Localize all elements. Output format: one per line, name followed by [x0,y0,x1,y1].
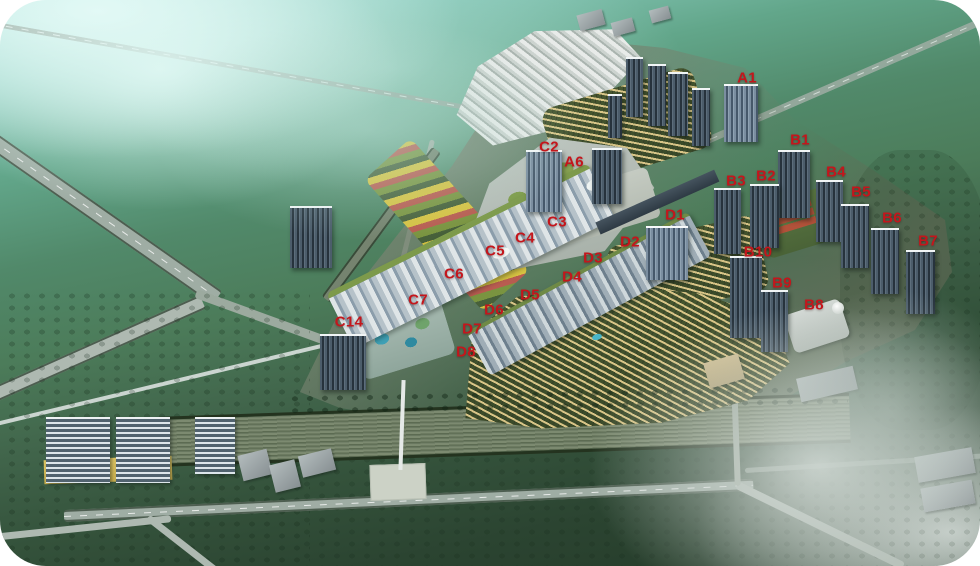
building-label-c5: C5 [485,243,505,260]
building-label-c7: C7 [408,292,428,309]
building-label-a1: A1 [737,70,757,87]
building-label-c3: C3 [547,214,567,231]
building-label-b8: B8 [804,297,824,314]
aerial-masterplan-rendering: A1B1C2A6B4B2B3B5D1B6C3C4B7D2C5B10D3C6D4B… [0,0,980,566]
building-label-b2: B2 [756,168,776,185]
building-label-c14: C14 [335,314,363,331]
building-labels: A1B1C2A6B4B2B3B5D1B6C3C4B7D2C5B10D3C6D4B… [0,0,980,566]
building-label-d2: D2 [620,234,640,251]
building-label-d4: D4 [562,269,582,286]
building-label-b10: B10 [744,244,772,261]
building-label-c2: C2 [539,139,559,156]
building-label-b3: B3 [726,173,746,190]
building-label-d6: D6 [484,302,504,319]
building-label-a6: A6 [564,154,584,171]
building-label-d5: D5 [520,287,540,304]
building-label-b5: B5 [851,184,871,201]
building-label-b1: B1 [790,132,810,149]
building-label-d8: D8 [456,344,476,361]
building-label-b9: B9 [772,275,792,292]
building-label-b4: B4 [826,164,846,181]
building-label-d7: D7 [462,321,482,338]
building-label-b7: B7 [918,233,938,250]
building-label-b6: B6 [882,210,902,227]
building-label-d3: D3 [583,250,603,267]
building-label-c6: C6 [444,266,464,283]
building-label-c4: C4 [515,230,535,247]
building-label-d1: D1 [665,207,685,224]
